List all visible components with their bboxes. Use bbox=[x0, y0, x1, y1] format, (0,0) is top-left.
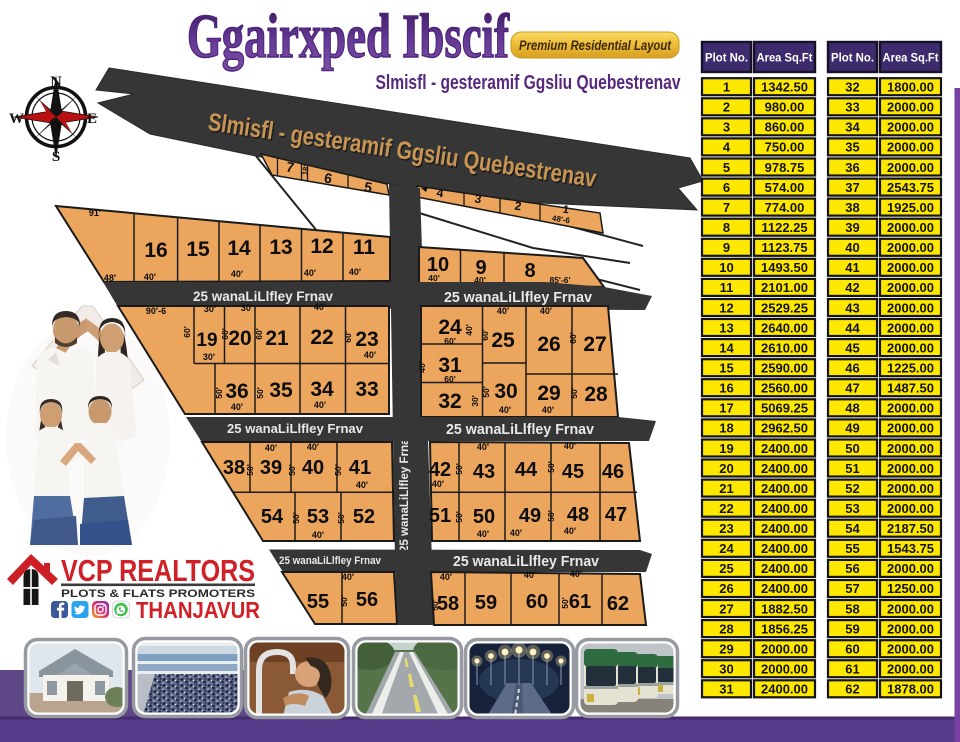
svg-text:29: 29 bbox=[719, 642, 733, 657]
svg-text:38: 38 bbox=[223, 457, 245, 479]
svg-text:61: 61 bbox=[845, 662, 859, 677]
svg-text:50': 50' bbox=[481, 386, 491, 397]
svg-text:25 wanaLiLlfley Frnav: 25 wanaLiLlfley Frnav bbox=[446, 422, 594, 438]
svg-text:56: 56 bbox=[356, 589, 378, 611]
svg-text:22: 22 bbox=[310, 326, 333, 349]
svg-text:980.00: 980.00 bbox=[765, 100, 805, 115]
svg-text:2560.00: 2560.00 bbox=[761, 381, 808, 396]
svg-text:60': 60' bbox=[480, 329, 490, 340]
svg-text:19: 19 bbox=[196, 330, 217, 351]
svg-text:40': 40' bbox=[314, 400, 326, 410]
svg-text:54: 54 bbox=[845, 521, 860, 536]
svg-text:1225.00: 1225.00 bbox=[887, 361, 934, 376]
svg-text:1487.50: 1487.50 bbox=[887, 381, 934, 396]
svg-text:50': 50' bbox=[454, 511, 464, 522]
svg-text:40': 40' bbox=[477, 529, 489, 539]
svg-text:40: 40 bbox=[845, 240, 859, 255]
svg-text:860.00: 860.00 bbox=[765, 120, 805, 135]
svg-text:6: 6 bbox=[723, 180, 730, 195]
svg-text:2000.00: 2000.00 bbox=[887, 601, 934, 616]
svg-text:40': 40' bbox=[314, 302, 326, 312]
svg-text:11: 11 bbox=[720, 280, 734, 295]
svg-text:2: 2 bbox=[723, 100, 730, 115]
svg-text:32: 32 bbox=[845, 80, 859, 95]
svg-text:62: 62 bbox=[607, 593, 629, 615]
svg-text:40': 40' bbox=[564, 441, 576, 451]
svg-text:60': 60' bbox=[444, 374, 455, 384]
svg-text:25 wanaLiLlfley Frnav: 25 wanaLiLlfley Frnav bbox=[444, 290, 592, 306]
svg-text:33: 33 bbox=[845, 100, 859, 115]
svg-text:14: 14 bbox=[719, 340, 734, 355]
svg-text:1543.75: 1543.75 bbox=[887, 541, 934, 556]
svg-text:978.75: 978.75 bbox=[765, 160, 805, 175]
svg-text:28: 28 bbox=[719, 621, 733, 636]
svg-text:60': 60' bbox=[568, 332, 578, 343]
svg-text:W: W bbox=[9, 111, 24, 127]
svg-text:50': 50' bbox=[569, 387, 579, 398]
svg-text:61: 61 bbox=[569, 591, 591, 613]
svg-text:2543.75: 2543.75 bbox=[887, 180, 934, 195]
svg-text:2400.00: 2400.00 bbox=[761, 682, 808, 697]
svg-text:40': 40' bbox=[307, 442, 319, 452]
svg-text:2000.00: 2000.00 bbox=[887, 260, 934, 275]
svg-text:44: 44 bbox=[515, 459, 538, 481]
svg-text:2400.00: 2400.00 bbox=[761, 501, 808, 516]
svg-text:50': 50' bbox=[245, 464, 255, 475]
svg-text:2962.50: 2962.50 bbox=[761, 421, 808, 436]
svg-text:750.00: 750.00 bbox=[765, 140, 805, 155]
svg-text:2400.00: 2400.00 bbox=[761, 581, 808, 596]
svg-text:52: 52 bbox=[845, 481, 859, 496]
svg-text:40': 40' bbox=[477, 442, 489, 452]
svg-text:49: 49 bbox=[519, 505, 541, 527]
svg-text:30': 30' bbox=[470, 395, 480, 406]
svg-text:60': 60' bbox=[444, 336, 455, 346]
svg-text:46: 46 bbox=[602, 461, 624, 483]
svg-text:51: 51 bbox=[429, 505, 451, 527]
svg-text:8: 8 bbox=[723, 220, 730, 235]
svg-text:42: 42 bbox=[845, 280, 859, 295]
svg-text:26: 26 bbox=[537, 333, 560, 356]
svg-text:30': 30' bbox=[204, 304, 216, 314]
svg-text:Area Sq.Ft: Area Sq.Ft bbox=[757, 51, 813, 65]
svg-text:59: 59 bbox=[845, 621, 859, 636]
svg-text:58: 58 bbox=[437, 593, 459, 615]
svg-text:15: 15 bbox=[186, 238, 210, 261]
svg-text:2400.00: 2400.00 bbox=[761, 541, 808, 556]
svg-text:46: 46 bbox=[845, 361, 859, 376]
svg-text:37: 37 bbox=[845, 180, 859, 195]
svg-text:40': 40' bbox=[144, 272, 156, 282]
svg-text:47: 47 bbox=[605, 504, 627, 526]
svg-text:33: 33 bbox=[355, 378, 378, 401]
svg-text:25 wanaLiLlfley Frnav: 25 wanaLiLlfley Frnav bbox=[397, 432, 411, 552]
svg-text:3: 3 bbox=[723, 120, 730, 135]
svg-text:40': 40' bbox=[265, 443, 277, 453]
svg-text:2000.00: 2000.00 bbox=[887, 160, 934, 175]
svg-text:50': 50' bbox=[454, 463, 464, 474]
svg-text:39: 39 bbox=[845, 220, 859, 235]
svg-text:45: 45 bbox=[562, 461, 584, 483]
svg-text:2000.00: 2000.00 bbox=[887, 441, 934, 456]
svg-text:60': 60' bbox=[220, 328, 230, 339]
svg-text:21: 21 bbox=[719, 481, 733, 496]
svg-text:40': 40' bbox=[417, 361, 427, 372]
svg-text:Plot No.: Plot No. bbox=[705, 51, 748, 65]
svg-text:40': 40' bbox=[312, 530, 324, 540]
svg-text:THANJAVUR: THANJAVUR bbox=[136, 597, 260, 623]
svg-text:35: 35 bbox=[845, 140, 859, 155]
svg-text:39: 39 bbox=[260, 457, 282, 479]
svg-text:50': 50' bbox=[336, 512, 346, 523]
svg-text:53: 53 bbox=[307, 506, 329, 528]
svg-text:40': 40' bbox=[304, 268, 316, 278]
svg-text:2000.00: 2000.00 bbox=[887, 240, 934, 255]
svg-text:90'-6: 90'-6 bbox=[146, 306, 166, 316]
svg-text:2529.25: 2529.25 bbox=[761, 300, 808, 315]
svg-text:2000.00: 2000.00 bbox=[761, 642, 808, 657]
svg-text:60': 60' bbox=[343, 331, 353, 342]
svg-text:38: 38 bbox=[845, 200, 859, 215]
svg-text:40': 40' bbox=[564, 526, 576, 536]
svg-text:E: E bbox=[87, 111, 97, 127]
svg-text:12: 12 bbox=[310, 235, 333, 258]
svg-text:40': 40' bbox=[464, 324, 474, 335]
svg-text:40': 40' bbox=[499, 405, 511, 415]
svg-text:40': 40' bbox=[231, 269, 243, 279]
svg-text:2187.50: 2187.50 bbox=[887, 521, 934, 536]
svg-text:40': 40' bbox=[342, 572, 354, 582]
svg-text:9: 9 bbox=[723, 240, 730, 255]
svg-text:25: 25 bbox=[719, 561, 733, 576]
svg-text:41: 41 bbox=[349, 457, 371, 479]
svg-text:62: 62 bbox=[845, 682, 859, 697]
svg-text:1493.50: 1493.50 bbox=[761, 260, 808, 275]
svg-text:25: 25 bbox=[491, 329, 515, 352]
svg-text:2000.00: 2000.00 bbox=[887, 662, 934, 677]
svg-text:40': 40' bbox=[428, 273, 439, 283]
svg-text:2400.00: 2400.00 bbox=[761, 461, 808, 476]
svg-text:43: 43 bbox=[845, 300, 859, 315]
svg-text:1800.00: 1800.00 bbox=[887, 80, 934, 95]
svg-text:40': 40' bbox=[364, 350, 376, 360]
svg-text:45: 45 bbox=[845, 340, 859, 355]
svg-text:40': 40' bbox=[570, 569, 582, 579]
svg-text:VCP REALTORS: VCP REALTORS bbox=[61, 553, 255, 588]
svg-text:40': 40' bbox=[356, 480, 368, 490]
svg-text:40': 40' bbox=[540, 306, 552, 316]
svg-text:11: 11 bbox=[353, 236, 376, 259]
svg-text:5: 5 bbox=[723, 160, 730, 175]
svg-text:24: 24 bbox=[719, 541, 734, 556]
svg-text:17: 17 bbox=[719, 401, 733, 416]
svg-text:2400.00: 2400.00 bbox=[761, 561, 808, 576]
svg-text:774.00: 774.00 bbox=[765, 200, 805, 215]
svg-text:2000.00: 2000.00 bbox=[887, 120, 934, 135]
svg-text:40': 40' bbox=[497, 306, 509, 316]
svg-text:1878.00: 1878.00 bbox=[887, 682, 934, 697]
svg-text:1122.25: 1122.25 bbox=[761, 220, 807, 235]
svg-text:14: 14 bbox=[227, 237, 251, 260]
svg-text:48: 48 bbox=[567, 504, 589, 526]
svg-text:16: 16 bbox=[719, 381, 733, 396]
svg-text:18: 18 bbox=[719, 421, 733, 436]
svg-text:27: 27 bbox=[719, 601, 733, 616]
svg-text:Plot No.: Plot No. bbox=[831, 51, 874, 65]
svg-text:50': 50' bbox=[339, 595, 349, 606]
svg-text:49: 49 bbox=[845, 421, 859, 436]
svg-text:1882.50: 1882.50 bbox=[761, 601, 808, 616]
svg-text:50': 50' bbox=[255, 387, 265, 398]
svg-text:52: 52 bbox=[353, 506, 375, 528]
svg-text:16: 16 bbox=[144, 239, 167, 262]
svg-text:2101.00: 2101.00 bbox=[761, 280, 808, 295]
svg-text:Area Sq.Ft: Area Sq.Ft bbox=[883, 51, 939, 65]
svg-text:2000.00: 2000.00 bbox=[887, 621, 934, 636]
svg-text:1342.50: 1342.50 bbox=[761, 80, 808, 95]
svg-text:60: 60 bbox=[526, 591, 548, 613]
svg-text:40': 40' bbox=[542, 405, 554, 415]
svg-text:54: 54 bbox=[261, 506, 284, 528]
svg-text:35: 35 bbox=[269, 379, 293, 402]
svg-text:4: 4 bbox=[723, 140, 731, 155]
svg-text:19: 19 bbox=[719, 441, 733, 456]
svg-text:30': 30' bbox=[241, 303, 253, 313]
svg-text:25 wanaLiLlfley Frnav: 25 wanaLiLlfley Frnav bbox=[453, 554, 599, 570]
svg-text:30': 30' bbox=[203, 352, 215, 362]
svg-text:26: 26 bbox=[719, 581, 733, 596]
svg-text:1250.00: 1250.00 bbox=[887, 581, 934, 596]
svg-text:20: 20 bbox=[228, 327, 251, 350]
svg-text:2000.00: 2000.00 bbox=[887, 481, 934, 496]
svg-text:2000.00: 2000.00 bbox=[887, 220, 934, 235]
svg-text:43: 43 bbox=[473, 461, 495, 483]
svg-text:S: S bbox=[52, 149, 60, 165]
svg-text:59: 59 bbox=[475, 592, 497, 614]
svg-text:29: 29 bbox=[537, 382, 560, 405]
svg-text:5: 5 bbox=[363, 178, 374, 195]
svg-text:30: 30 bbox=[494, 380, 517, 403]
svg-text:15: 15 bbox=[719, 361, 733, 376]
svg-text:2590.00: 2590.00 bbox=[761, 361, 808, 376]
svg-text:N: N bbox=[50, 74, 62, 91]
svg-text:55: 55 bbox=[845, 541, 859, 556]
svg-text:41: 41 bbox=[845, 260, 859, 275]
svg-text:5069.25: 5069.25 bbox=[761, 401, 808, 416]
svg-text:31: 31 bbox=[719, 682, 733, 697]
svg-text:2610.00: 2610.00 bbox=[761, 340, 808, 355]
svg-text:55: 55 bbox=[307, 591, 329, 613]
svg-text:36: 36 bbox=[225, 380, 248, 403]
svg-text:22: 22 bbox=[719, 501, 733, 516]
svg-text:53: 53 bbox=[845, 501, 859, 516]
svg-text:51: 51 bbox=[845, 461, 859, 476]
svg-text:57: 57 bbox=[845, 581, 859, 596]
svg-text:1856.25: 1856.25 bbox=[761, 621, 808, 636]
svg-text:8: 8 bbox=[524, 260, 535, 282]
svg-text:91': 91' bbox=[89, 208, 101, 218]
svg-text:44: 44 bbox=[845, 320, 860, 335]
svg-text:18': 18' bbox=[300, 164, 311, 176]
svg-text:34: 34 bbox=[845, 120, 860, 135]
svg-text:2000.00: 2000.00 bbox=[887, 642, 934, 657]
svg-text:50': 50' bbox=[287, 464, 297, 475]
svg-text:2000.00: 2000.00 bbox=[761, 662, 808, 677]
svg-text:50': 50' bbox=[333, 464, 343, 475]
svg-text:2000.00: 2000.00 bbox=[887, 340, 934, 355]
svg-text:25 wanaLiLlfley Frnav: 25 wanaLiLlfley Frnav bbox=[279, 555, 382, 567]
svg-text:40': 40' bbox=[349, 267, 361, 277]
svg-text:28: 28 bbox=[584, 383, 608, 406]
svg-text:20: 20 bbox=[719, 461, 733, 476]
svg-text:50': 50' bbox=[560, 597, 570, 608]
svg-text:13: 13 bbox=[719, 320, 733, 335]
svg-text:12: 12 bbox=[719, 300, 733, 315]
svg-text:2000.00: 2000.00 bbox=[887, 140, 934, 155]
svg-text:Ggairxped Ibscif: Ggairxped Ibscif bbox=[187, 3, 510, 71]
svg-text:2000.00: 2000.00 bbox=[887, 461, 934, 476]
svg-text:48': 48' bbox=[104, 273, 116, 283]
svg-text:Slmisfl - gesteramif Ggsliu Qu: Slmisfl - gesteramif Ggsliu Quebestrenav bbox=[376, 72, 682, 94]
svg-text:23: 23 bbox=[719, 521, 733, 536]
svg-text:40: 40 bbox=[302, 457, 324, 479]
svg-text:2000.00: 2000.00 bbox=[887, 300, 934, 315]
svg-text:2400.00: 2400.00 bbox=[761, 481, 808, 496]
svg-text:48: 48 bbox=[845, 401, 859, 416]
svg-text:25 wanaLiLlfley Frnav: 25 wanaLiLlfley Frnav bbox=[193, 289, 333, 304]
svg-text:2000.00: 2000.00 bbox=[887, 320, 934, 335]
svg-text:50': 50' bbox=[430, 599, 440, 610]
svg-text:50': 50' bbox=[214, 387, 224, 398]
svg-text:10: 10 bbox=[719, 260, 733, 275]
svg-text:50: 50 bbox=[845, 441, 859, 456]
svg-text:30: 30 bbox=[719, 662, 733, 677]
svg-text:60: 60 bbox=[845, 642, 859, 657]
svg-text:50': 50' bbox=[291, 512, 301, 523]
svg-text:34: 34 bbox=[310, 378, 334, 401]
svg-text:2000.00: 2000.00 bbox=[887, 421, 934, 436]
svg-text:56: 56 bbox=[845, 561, 859, 576]
svg-text:40': 40' bbox=[231, 402, 243, 412]
svg-text:2000.00: 2000.00 bbox=[887, 401, 934, 416]
svg-text:1123.75: 1123.75 bbox=[761, 240, 807, 255]
svg-text:58: 58 bbox=[845, 601, 859, 616]
svg-text:42: 42 bbox=[429, 459, 451, 481]
svg-text:50': 50' bbox=[546, 510, 556, 521]
svg-text:40': 40' bbox=[524, 570, 536, 580]
svg-text:2000.00: 2000.00 bbox=[887, 561, 934, 576]
svg-text:23: 23 bbox=[355, 328, 378, 351]
svg-text:2400.00: 2400.00 bbox=[761, 521, 808, 536]
svg-text:47: 47 bbox=[845, 381, 859, 396]
svg-text:60': 60' bbox=[182, 326, 192, 337]
svg-text:7: 7 bbox=[723, 200, 730, 215]
svg-text:32: 32 bbox=[438, 390, 461, 413]
svg-text:Premium Residential Layout: Premium Residential Layout bbox=[519, 38, 671, 53]
svg-text:13: 13 bbox=[269, 236, 292, 259]
svg-text:21: 21 bbox=[265, 327, 289, 350]
svg-text:40': 40' bbox=[440, 572, 452, 582]
svg-text:40': 40' bbox=[510, 528, 522, 538]
svg-text:36: 36 bbox=[845, 160, 859, 175]
svg-text:50: 50 bbox=[473, 506, 495, 528]
svg-text:2640.00: 2640.00 bbox=[761, 320, 808, 335]
svg-text:2000.00: 2000.00 bbox=[887, 280, 934, 295]
svg-text:1925.00: 1925.00 bbox=[887, 200, 934, 215]
svg-text:50': 50' bbox=[546, 461, 556, 472]
svg-text:1: 1 bbox=[723, 80, 730, 95]
svg-text:40': 40' bbox=[432, 479, 444, 489]
svg-text:27: 27 bbox=[583, 333, 606, 356]
svg-text:25 wanaLiLlfley Frnav: 25 wanaLiLlfley Frnav bbox=[227, 422, 363, 436]
svg-text:2400.00: 2400.00 bbox=[761, 441, 808, 456]
svg-text:574.00: 574.00 bbox=[765, 180, 805, 195]
svg-text:60': 60' bbox=[254, 328, 264, 339]
svg-text:2000.00: 2000.00 bbox=[887, 501, 934, 516]
svg-text:2000.00: 2000.00 bbox=[887, 100, 934, 115]
